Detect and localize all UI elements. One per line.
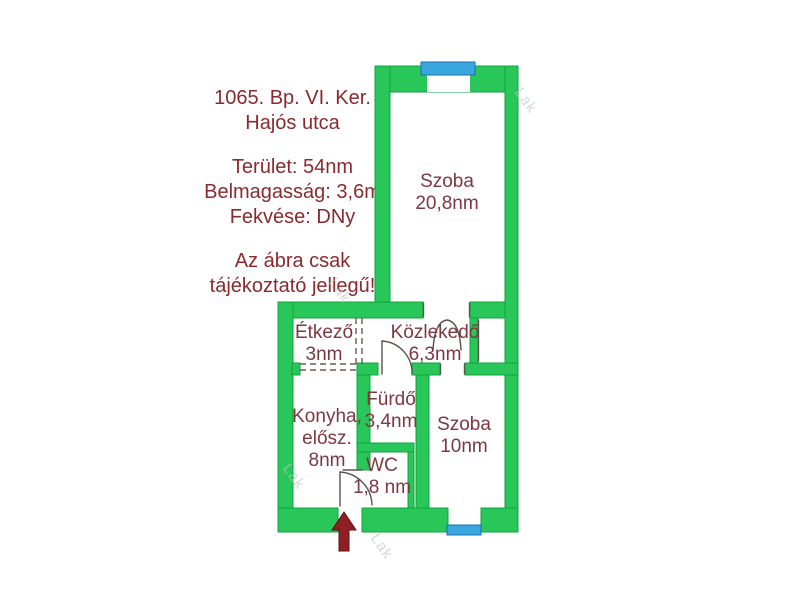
room-area: 1,8 nm (353, 477, 411, 499)
window-marker-top (421, 62, 475, 75)
floor-plan-drawing (0, 0, 800, 600)
room-label-szoba-kis: Szoba 10nm (437, 414, 491, 458)
room-name: Konyha, (292, 406, 362, 428)
wall-mid-left (278, 302, 423, 318)
room-area: 3,4nm (365, 411, 418, 433)
room-area: 3nm (295, 344, 353, 366)
wall-bottom-right (481, 508, 518, 532)
window-niche-top (427, 75, 470, 92)
wall-szoba-kis-left (416, 375, 429, 508)
wall-hall-a (357, 363, 378, 375)
floor-plan-page: 1065. Bp. VI. Ker. Hajós utca Terület: 5… (0, 0, 800, 600)
room-name: Szoba (415, 171, 478, 193)
wall-bottom-left (278, 508, 338, 532)
room-area: 6,3nm (391, 344, 480, 366)
wall-mid-right (470, 302, 505, 318)
room-name: Szoba (437, 414, 491, 436)
room-name-2: elősz. (292, 428, 362, 450)
room-label-konyha: Konyha, elősz. 8nm (292, 406, 362, 472)
room-name: Étkező (295, 322, 353, 344)
room-label-kozlekedo: Közlekedő 6,3nm (391, 322, 480, 366)
window-marker-bottom (447, 525, 481, 535)
room-area: 10nm (437, 436, 491, 458)
room-name: Fürdő (365, 389, 418, 411)
room-label-wc: WC 1,8 nm (353, 455, 411, 499)
room-label-etkezo: Étkező 3nm (295, 322, 353, 366)
wall-bottom-mid (362, 508, 448, 532)
wall-left-upper (375, 66, 390, 318)
wall-left-lower (278, 302, 293, 532)
room-area: 20,8nm (415, 193, 478, 215)
room-name: Közlekedő (391, 322, 480, 344)
room-label-furdo: Fürdő 3,4nm (365, 389, 418, 433)
wall-right (505, 66, 518, 532)
room-name: WC (353, 455, 411, 477)
wall-wc-top (357, 443, 414, 452)
room-label-szoba-nagy: Szoba 20,8nm (415, 171, 478, 215)
room-area: 8nm (292, 450, 362, 472)
